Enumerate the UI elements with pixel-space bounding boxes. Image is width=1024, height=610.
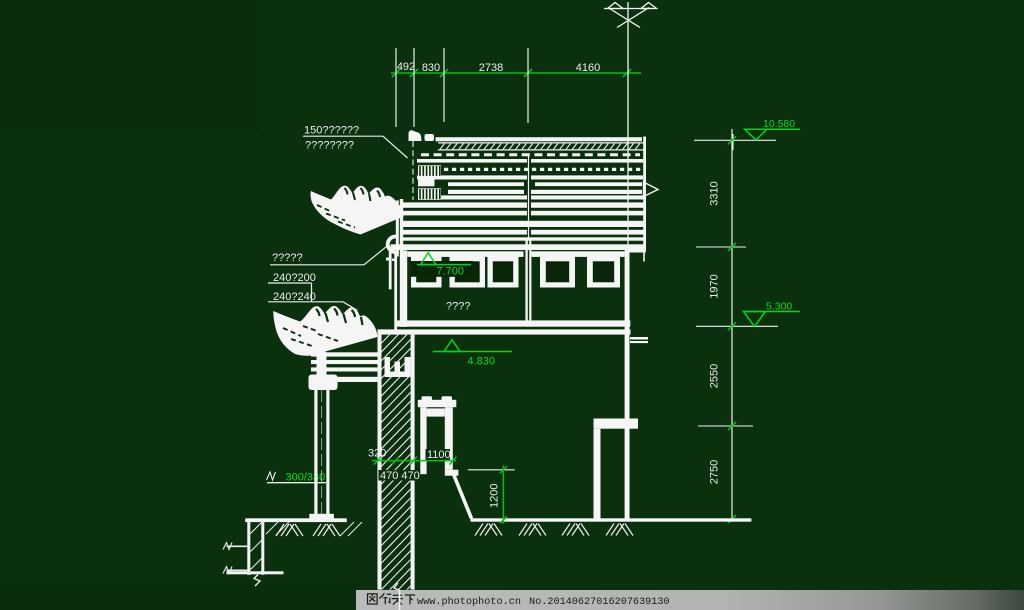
svg-text:10.580: 10.580 [763,118,795,130]
svg-text:?????: ????? [272,252,303,264]
svg-text:470 470: 470 470 [380,470,420,482]
svg-text:????????: ???????? [305,140,354,152]
svg-text:830: 830 [422,62,440,74]
svg-text:2738: 2738 [479,62,503,74]
svg-text:4.830: 4.830 [468,356,496,368]
svg-text:3310: 3310 [709,181,721,205]
svg-text:4160: 4160 [576,62,600,74]
svg-text:2750: 2750 [709,460,721,484]
svg-text:1100: 1100 [427,449,451,461]
svg-text:2550: 2550 [709,364,721,388]
svg-text:5.300: 5.300 [766,301,792,313]
svg-text:No.20140627016207639130: No.20140627016207639130 [529,597,670,608]
svg-text:1200: 1200 [489,483,501,507]
svg-text:240?200: 240?200 [273,272,316,284]
svg-text:1970: 1970 [709,274,721,298]
svg-text:????: ???? [446,301,470,313]
svg-text:492: 492 [397,61,415,73]
svg-text:150??????: 150?????? [304,125,359,137]
svg-text:www.photophoto.cn: www.photophoto.cn [417,596,521,608]
svg-text:320: 320 [368,448,386,460]
svg-text:300/330: 300/330 [286,472,326,484]
svg-text:7.700: 7.700 [437,266,465,278]
